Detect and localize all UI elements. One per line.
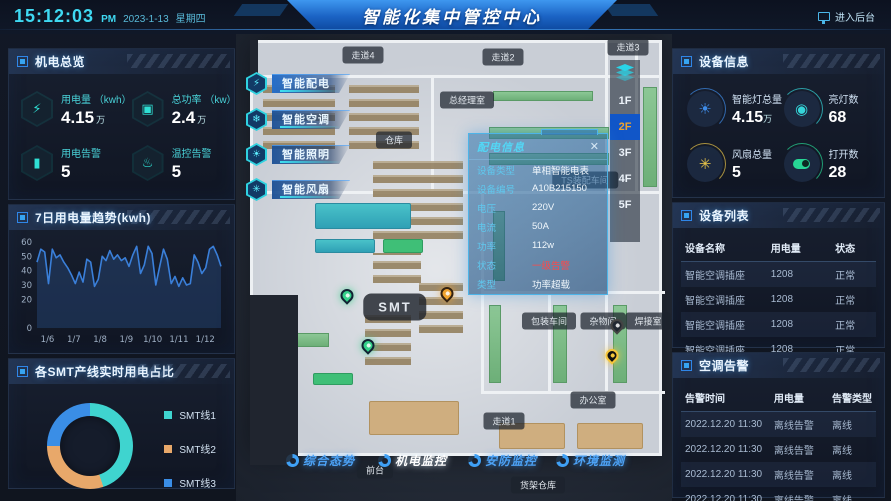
table-cell: 智能空调插座 (681, 287, 767, 312)
device-stat: ✳风扇总量5 (687, 145, 784, 182)
svg-text:20: 20 (21, 295, 32, 305)
device-stat-text: 智能灯总量4.15万 (732, 90, 782, 127)
popup-field: 电流50A (469, 217, 607, 236)
popup-field-value: 50A (532, 221, 549, 232)
column-header: 告警类型 (828, 384, 876, 412)
fan-icon: ✳ (252, 184, 260, 195)
table-cell: 离线告警 (770, 412, 828, 437)
table-cell: 1208 (767, 312, 831, 337)
clock: 15:12:03 PM 2023-1-13 星期四 (14, 6, 206, 27)
button-hex-badge: ☀ (246, 143, 267, 166)
stat-label: 用电量 （kwh） (61, 95, 132, 106)
mechatronic-icon (378, 454, 391, 467)
room-label: 包装车间 (522, 313, 576, 330)
stat-value: 4.15万 (732, 109, 772, 126)
panel-bullet-icon (17, 366, 28, 377)
date-text: 2023-1-13 (123, 14, 169, 25)
panel-title: 设备列表 (699, 207, 749, 224)
monitor-icon: ▣ (141, 101, 153, 117)
button-hex-badge: ⚡ (246, 72, 267, 95)
svg-text:30: 30 (21, 281, 32, 291)
panel-title: 7日用电量趋势(kwh) (35, 209, 151, 226)
stat-label: 亮灯数 (829, 95, 859, 106)
svg-text:60: 60 (21, 238, 32, 248)
floorplan-scene: 走道4走道2走道3总经理室仓库SMTTS装配车间包装车间杂物间焊接室办公室走道1… (236, 34, 672, 501)
weekday-text: 星期四 (176, 10, 206, 25)
map-button-3[interactable]: ☀智能照明 (246, 143, 350, 166)
svg-text:1/10: 1/10 (143, 335, 162, 345)
popup-field-label: 电压 (477, 201, 532, 215)
legend-item: SMT线1 (164, 407, 216, 422)
popup-field-label: 状态 (477, 258, 532, 272)
button-hex-badge: ✳ (246, 178, 267, 201)
stat-total-power: ▣ 总功率 （kw） 2.4万 (132, 90, 237, 128)
smt-machine (315, 239, 375, 253)
svg-text:1/9: 1/9 (120, 335, 134, 345)
line-chart-svg: 605040302001/61/71/81/91/101/111/12 (11, 234, 230, 352)
popup-field-value: 一级告警 (532, 258, 570, 272)
stat-value: 5 (61, 162, 70, 181)
table-cell: 离线告警 (770, 487, 828, 501)
legend-item: SMT线2 (164, 441, 216, 456)
rack-zone (365, 313, 411, 365)
table-cell: 离线告警 (770, 437, 828, 462)
popup-field: 状态一级告警 (469, 255, 607, 274)
lightning-icon: ⚡ (253, 78, 260, 89)
panel-device-info: 设备信息 ☀智能灯总量4.15万◉亮灯数68✳风扇总量5打开数28 (672, 48, 885, 198)
stat-temp-alarm: ♨ 温控告警 5 (132, 144, 237, 182)
panel-bullet-icon (681, 210, 692, 221)
wall (605, 293, 608, 393)
room-label: 走道1 (483, 413, 524, 430)
table-cell: 离线 (828, 462, 876, 487)
room-label: 办公室 (570, 392, 615, 409)
security-icon (468, 454, 481, 467)
wall (548, 293, 551, 393)
trend-line-chart: 605040302001/61/71/81/91/101/111/12 (9, 230, 234, 357)
device-stat-text: 风扇总量5 (732, 145, 772, 182)
smt-machine (383, 239, 423, 253)
snowflake-icon: ❄ (252, 114, 260, 125)
floor-option-2F[interactable]: 2F (610, 114, 640, 140)
table-cell: 2022.12.20 11:30 (681, 412, 770, 437)
device-stat-text: 亮灯数68 (829, 90, 859, 127)
popup-field-label: 功率 (477, 239, 532, 253)
popup-field-value: A10B215150 (532, 183, 587, 194)
floor-option-1F[interactable]: 1F (610, 88, 640, 114)
enter-backend-button[interactable]: 进入后台 (818, 9, 875, 24)
column-header: 用电量 (767, 234, 831, 262)
stat-label: 智能灯总量 (732, 95, 782, 106)
svg-text:40: 40 (21, 267, 32, 277)
svg-text:50: 50 (21, 252, 32, 262)
popup-field: 电压220V (469, 198, 607, 217)
svg-text:1/6: 1/6 (41, 335, 55, 345)
stat-value: 68 (829, 109, 847, 126)
meridiem-text: PM (101, 14, 116, 25)
device-stat: ☀智能灯总量4.15万 (687, 90, 784, 127)
stat-value: 5 (732, 164, 741, 181)
nav-label: 综合态势 (303, 452, 355, 469)
device-stat-text: 打开数28 (829, 145, 859, 182)
table-row: 2022.12.20 11:30离线告警离线 (681, 462, 876, 487)
stat-label: 温控告警 (172, 149, 212, 160)
map-button-label: 智能配电 (272, 74, 350, 93)
map-button-label: 智能空调 (272, 110, 350, 129)
popup-field-value: 功率超载 (532, 277, 570, 291)
table-cell: 离线告警 (770, 462, 828, 487)
svg-text:1/8: 1/8 (93, 335, 107, 345)
toggle-icon (784, 146, 820, 182)
dashboard-root: 15:12:03 PM 2023-1-13 星期四 智能化集中管控中心 进入后台 (0, 0, 891, 501)
storage-shelf (369, 401, 459, 435)
table-cell: 2022.12.20 11:30 (681, 487, 770, 501)
table-row: 智能空调插座1208正常 (681, 262, 876, 287)
enter-backend-label: 进入后台 (835, 9, 875, 24)
banner-wing-right (604, 4, 658, 16)
table-row: 智能空调插座1208正常 (681, 312, 876, 337)
table-cell: 正常 (831, 312, 876, 337)
panel-bullet-icon (17, 56, 28, 67)
flashlight-icon: ◉ (784, 91, 820, 127)
conveyor (643, 87, 657, 187)
popup-field: 类型功率超载 (469, 274, 607, 293)
table-header-row: 设备名称用电量状态 (681, 234, 876, 262)
lightning-icon: ⚡ (32, 101, 41, 117)
ac-alarm-table: 告警时间用电量告警类型2022.12.20 11:30离线告警离线2022.12… (681, 384, 876, 501)
time-text: 15:12:03 (14, 6, 94, 27)
column-header: 用电量 (770, 384, 828, 412)
panel-trend-chart: 7日用电量趋势(kwh) 605040302001/61/71/81/91/10… (8, 204, 235, 354)
flashlight-icon: ◉ (795, 100, 808, 118)
smt-machine (315, 203, 411, 229)
room-label: 走道4 (342, 47, 383, 64)
table-cell: 2022.12.20 11:30 (681, 437, 770, 462)
column-header: 状态 (831, 234, 876, 262)
panel-ac-alarms: 空调告警 告警时间用电量告警类型2022.12.20 11:30离线告警离线20… (672, 352, 885, 498)
stat-value: 5 (172, 162, 181, 181)
table-row: 2022.12.20 11:30离线告警离线 (681, 437, 876, 462)
bulb-icon: ☀ (698, 100, 711, 118)
popup-field: 设备编号A10B215150 (469, 179, 607, 198)
button-hex-badge: ❄ (246, 108, 267, 131)
map-button-4[interactable]: ✳智能风扇 (246, 178, 350, 201)
svg-text:1/12: 1/12 (196, 335, 215, 345)
stat-label: 打开数 (829, 150, 859, 161)
legend-swatch (164, 445, 172, 453)
legend-swatch (164, 479, 172, 487)
table-header-row: 告警时间用电量告警类型 (681, 384, 876, 412)
stat-label: 总功率 （kw） (172, 95, 237, 106)
floor-option-4F[interactable]: 4F (610, 166, 640, 192)
device-stat: 打开数28 (784, 145, 881, 182)
room-label: SMT (363, 294, 426, 321)
nav-2[interactable]: 机电监控 (378, 452, 447, 469)
table-row: 2022.12.20 11:30离线告警离线 (681, 412, 876, 437)
light-icon: ☀ (252, 149, 261, 160)
donut-legend: SMT线1SMT线2SMT线3 (164, 407, 216, 490)
room-label: 仓库 (376, 132, 412, 149)
banner-wing-left (234, 4, 288, 16)
popup-field-value: 单相智能电表 (532, 163, 589, 177)
svg-text:0: 0 (27, 324, 32, 334)
environment-icon (556, 454, 569, 467)
nav-label: 机电监控 (395, 452, 447, 469)
panel-device-list: 设备列表 设备名称用电量状态智能空调插座1208正常智能空调插座1208正常智能… (672, 202, 885, 348)
svg-text:1/11: 1/11 (169, 335, 188, 345)
panel-title: 各SMT产线实时用电占比 (35, 363, 174, 380)
room-label: 货架仓库 (511, 477, 565, 494)
thermometer-icon: ♨ (142, 155, 154, 171)
nav-3[interactable]: 安防监控 (468, 452, 537, 469)
panel-bullet-icon (681, 56, 692, 67)
popup-field-value: 220V (532, 202, 554, 213)
popup-field-label: 设备编号 (477, 182, 532, 196)
table-cell: 离线 (828, 437, 876, 462)
stat-value: 28 (829, 164, 847, 181)
popup-field-label: 电流 (477, 220, 532, 234)
table-cell: 智能空调插座 (681, 312, 767, 337)
floor-cutout (250, 295, 298, 465)
svg-text:1/7: 1/7 (67, 335, 81, 345)
fan-icon: ✳ (687, 146, 723, 182)
legend-label: SMT线2 (179, 441, 216, 456)
legend-swatch (164, 411, 172, 419)
stat-power-usage: ⚡ 用电量 （kwh） 4.15万 (21, 90, 132, 128)
table-cell: 正常 (831, 262, 876, 287)
column-header: 设备名称 (681, 234, 767, 262)
nav-1[interactable]: 综合态势 (286, 452, 355, 469)
table-cell: 2022.12.20 11:30 (681, 462, 770, 487)
map-button-1[interactable]: ⚡智能配电 (246, 72, 350, 95)
device-list-table: 设备名称用电量状态智能空调插座1208正常智能空调插座1208正常智能空调插座1… (681, 234, 876, 362)
conveyor (489, 305, 501, 383)
smt-donut-chart (47, 403, 133, 489)
panel-bullet-icon (681, 360, 692, 371)
panel-title: 空调告警 (699, 357, 749, 374)
nav-label: 安防监控 (485, 452, 537, 469)
stat-value: 4.15万 (61, 108, 105, 127)
conveyor (493, 91, 593, 101)
popup-title: 配电信息 (477, 139, 525, 155)
rack-zone (373, 253, 421, 283)
table-cell: 1208 (767, 262, 831, 287)
top-header: 15:12:03 PM 2023-1-13 星期四 智能化集中管控中心 进入后台 (0, 0, 891, 34)
room-label: 走道2 (482, 49, 523, 66)
battery-icon: ▮ (33, 155, 40, 171)
table-cell: 1208 (767, 287, 831, 312)
panel-title: 设备信息 (699, 53, 749, 70)
room-label: 焊接室 (625, 313, 670, 330)
nav-4[interactable]: 环境监测 (556, 452, 625, 469)
map-button-2[interactable]: ❄智能空调 (246, 108, 350, 131)
table-cell: 离线 (828, 412, 876, 437)
overview-icon (286, 454, 299, 467)
close-icon[interactable]: ✕ (590, 142, 599, 153)
table-cell: 智能空调插座 (681, 262, 767, 287)
popup-field-value: 112w (532, 240, 554, 251)
floor-option-3F[interactable]: 3F (610, 140, 640, 166)
popup-field: 功率112w (469, 236, 607, 255)
layers-icon[interactable] (616, 64, 634, 80)
room-label: 走道3 (607, 39, 648, 56)
popup-fields: 设备类型单相智能电表设备编号A10B215150电压220V电流50A功率112… (469, 160, 607, 293)
stat-label: 风扇总量 (732, 150, 772, 161)
legend-label: SMT线1 (179, 407, 216, 422)
office-desk (577, 423, 643, 449)
table-cell: 正常 (831, 287, 876, 312)
power-info-popup: 配电信息 ✕ 设备类型单相智能电表设备编号A10B215150电压220V电流5… (468, 133, 608, 295)
panel-title: 机电总览 (35, 53, 85, 70)
map-button-label: 智能风扇 (272, 180, 350, 199)
panel-smt-donut: 各SMT产线实时用电占比 SMT线1SMT线2SMT线3 (8, 358, 235, 489)
toggle-icon (793, 159, 810, 169)
smt-machine (313, 373, 353, 385)
popup-field: 设备类型单相智能电表 (469, 160, 607, 179)
room-label: 总经理室 (440, 92, 494, 109)
monitor-icon (818, 12, 830, 21)
popup-field-label: 设备类型 (477, 163, 532, 177)
device-stat: ◉亮灯数68 (784, 90, 881, 127)
stat-power-alarm: ▮ 用电告警 5 (21, 144, 132, 182)
fan-icon: ✳ (699, 155, 712, 173)
panel-me-overview: 机电总览 ⚡ 用电量 （kwh） 4.15万 ▣ 总功率 （kw） 2.4万 ▮… (8, 48, 235, 200)
legend-label: SMT线3 (179, 475, 216, 490)
floor-selector: 1F2F3F4F5F (610, 60, 640, 242)
stat-value: 2.4万 (172, 108, 207, 127)
table-row: 智能空调插座1208正常 (681, 287, 876, 312)
panel-bullet-icon (17, 212, 28, 223)
app-title-banner: 智能化集中管控中心 (287, 0, 617, 30)
table-row: 2022.12.20 11:30离线告警离线 (681, 487, 876, 501)
page-title: 智能化集中管控中心 (362, 3, 542, 28)
column-header: 告警时间 (681, 384, 770, 412)
stat-label: 用电告警 (61, 149, 101, 160)
map-button-label: 智能照明 (272, 145, 350, 164)
popup-field-label: 类型 (477, 277, 532, 291)
floor-option-5F[interactable]: 5F (610, 192, 640, 218)
nav-label: 环境监测 (573, 452, 625, 469)
bulb-icon: ☀ (687, 91, 723, 127)
legend-item: SMT线3 (164, 475, 216, 490)
table-cell: 离线 (828, 487, 876, 501)
